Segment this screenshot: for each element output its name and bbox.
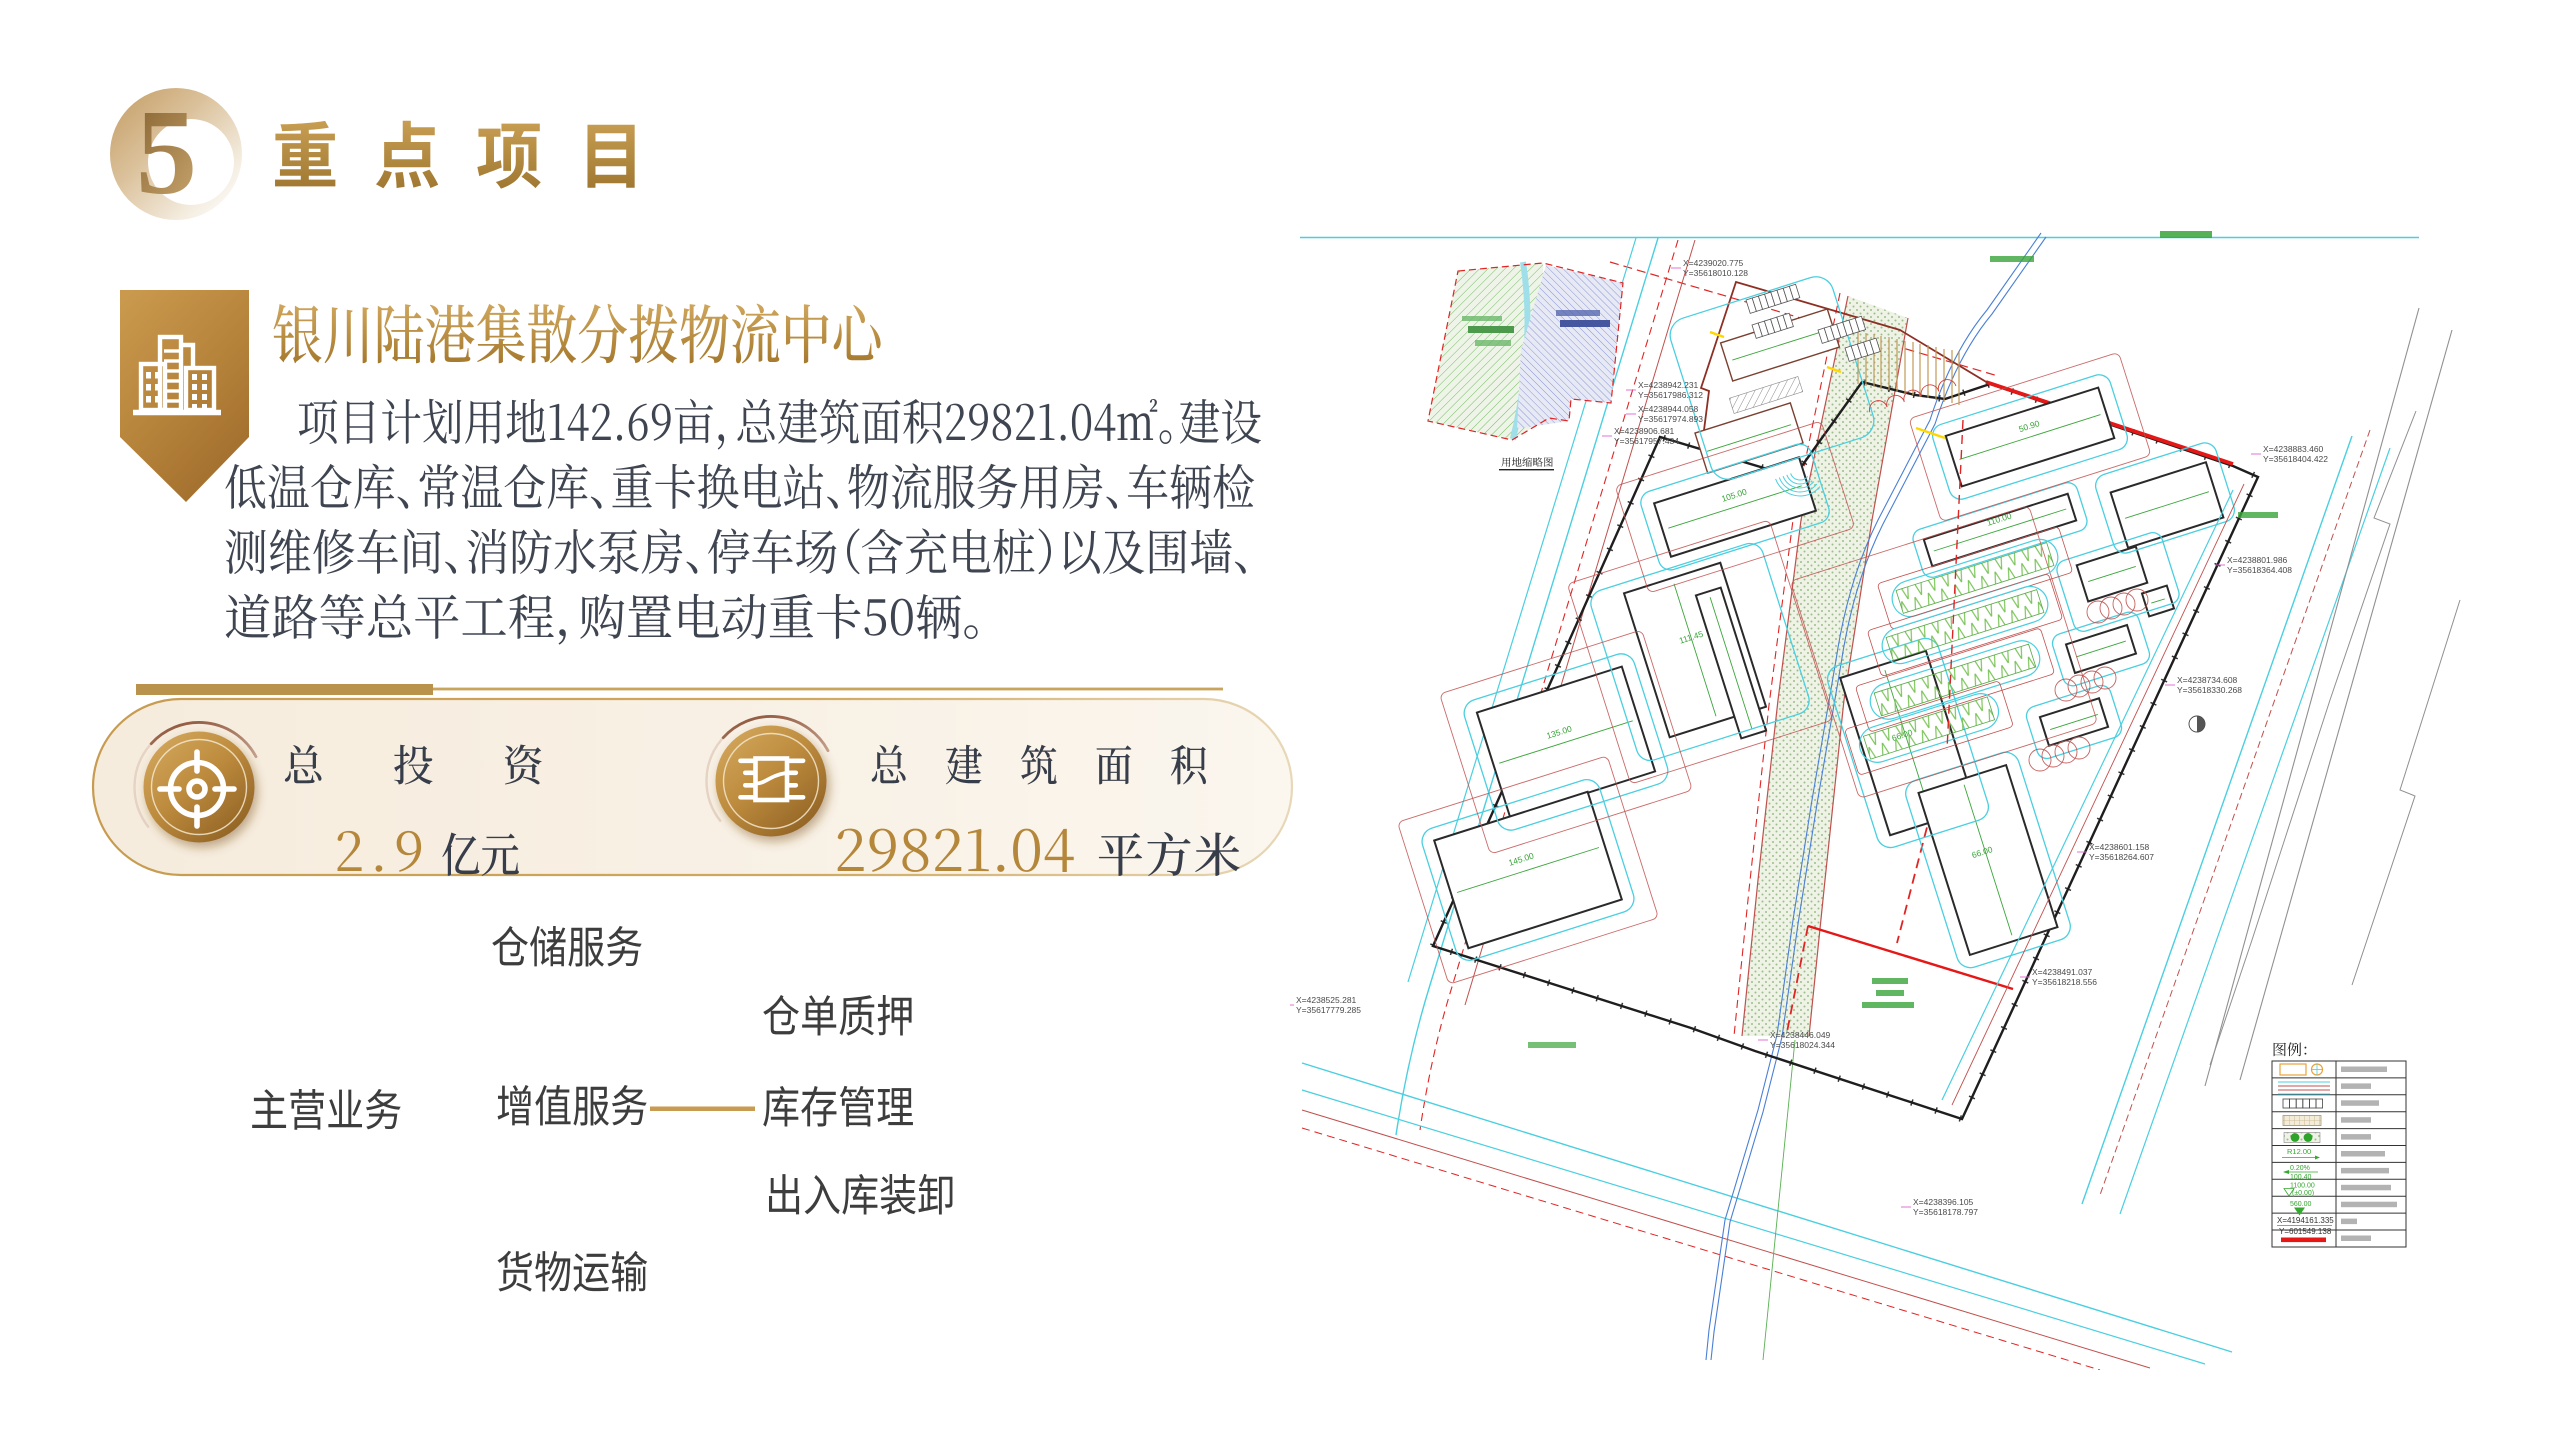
svg-text:X=4238942.231: X=4238942.231 — [1638, 380, 1699, 390]
svg-text:X=4238491.037: X=4238491.037 — [2032, 967, 2093, 977]
svg-text:Y=35618010.128: Y=35618010.128 — [1683, 268, 1748, 278]
svg-text:(±0.00): (±0.00) — [2292, 1190, 2314, 1197]
svg-text:Y=35618178.797: Y=35618178.797 — [1913, 1207, 1978, 1217]
svg-text:5: 5 — [136, 85, 197, 220]
svg-text:X=4238734.608: X=4238734.608 — [2177, 675, 2238, 685]
svg-text:X=4238801.986: X=4238801.986 — [2227, 555, 2288, 565]
svg-text:Y=601549.138: Y=601549.138 — [2279, 1227, 2332, 1236]
svg-text:Y=35617779.285: Y=35617779.285 — [1296, 1005, 1361, 1015]
svg-text:X=4238525.281: X=4238525.281 — [1296, 995, 1357, 1005]
svg-text:R12.00: R12.00 — [2287, 1147, 2311, 1156]
svg-text:X=4238944.058: X=4238944.058 — [1638, 404, 1699, 414]
svg-text:X=4238906.681: X=4238906.681 — [1614, 426, 1675, 436]
svg-text:Y=35618404.422: Y=35618404.422 — [2263, 454, 2328, 464]
svg-text:X=4238601.158: X=4238601.158 — [2089, 842, 2150, 852]
svg-text:Y=35618364.408: Y=35618364.408 — [2227, 565, 2292, 575]
svg-text:X=4239020.775: X=4239020.775 — [1683, 258, 1744, 268]
svg-text:X=4194161.335: X=4194161.335 — [2277, 1216, 2334, 1225]
svg-text:Y=35618024.344: Y=35618024.344 — [1770, 1040, 1835, 1050]
svg-text:X=4238883.460: X=4238883.460 — [2263, 444, 2324, 454]
svg-text:Y=35618218.556: Y=35618218.556 — [2032, 977, 2097, 987]
svg-text:Y=35617974.893: Y=35617974.893 — [1638, 414, 1703, 424]
svg-text:Y=35617957.434: Y=35617957.434 — [1614, 436, 1679, 446]
svg-text:Y=35618264.607: Y=35618264.607 — [2089, 852, 2154, 862]
svg-text:X=4238396.105: X=4238396.105 — [1913, 1197, 1974, 1207]
svg-text:0.20%: 0.20% — [2290, 1165, 2310, 1172]
svg-text:560.00: 560.00 — [2290, 1201, 2312, 1208]
svg-text:Y=35617986.312: Y=35617986.312 — [1638, 390, 1703, 400]
svg-text:X=4238446.049: X=4238446.049 — [1770, 1030, 1831, 1040]
svg-text:100.40: 100.40 — [2290, 1174, 2312, 1181]
svg-text:Y=35618330.268: Y=35618330.268 — [2177, 685, 2242, 695]
